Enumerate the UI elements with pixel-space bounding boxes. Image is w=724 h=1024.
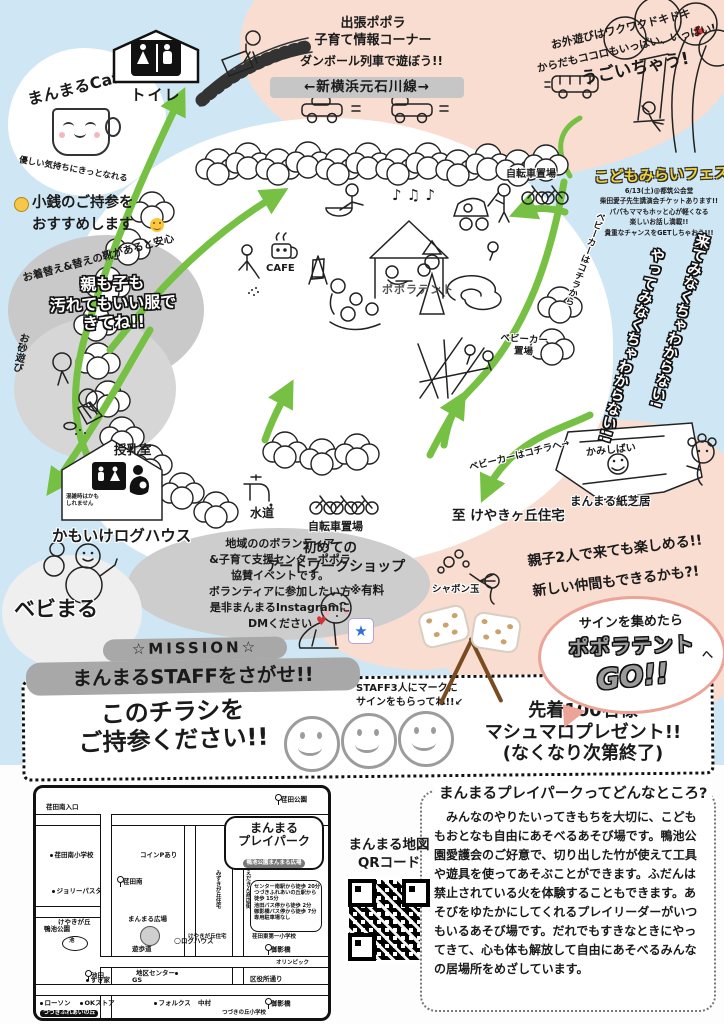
street-map-label: 区役所通り <box>250 976 283 984</box>
pond-shape <box>62 936 88 951</box>
street-map: 荏田南入口 荏田公園 みずきが丘住宅 えだきん商店街 荏田南小学校 荏田南 コイ… <box>33 785 331 1021</box>
map-bubble-sub: 鴨池公園まんまる広場 <box>243 859 304 868</box>
toilet-label: トイレ <box>110 86 202 106</box>
map-water-label: 水道 <box>250 506 274 522</box>
street-map-bus-stop: 荏田南 <box>116 876 143 887</box>
street-map-label: すき家 <box>86 977 110 985</box>
map-bike-top-label: 自転車置場 <box>506 168 556 181</box>
kamishibai-label: まんまる紙芝居 <box>570 494 651 509</box>
street-map-label: 荏田南小学校 <box>50 852 94 860</box>
street-map-bus-stop: 御影橋 <box>264 944 291 955</box>
street-map-title-bubble: まんまる プレイパーク 鴨池公園まんまる広場 <box>224 816 324 870</box>
fes-line-4: 楽しいお話し満載!! <box>594 217 724 228</box>
map-bubble-line2: プレイパーク <box>226 835 322 848</box>
street-map-access-box: センター南駅から徒歩 20分 つづきふれあいの丘駅から 徒歩 15分 池田バス停… <box>250 880 322 932</box>
star-sticker-icon: ★ <box>348 618 374 644</box>
toilet-icon <box>131 40 181 76</box>
coins-note: 小銭のご持参を おすすめします <box>32 192 134 237</box>
poi-dot <box>52 890 55 893</box>
access-line: 専用駐車場なし <box>254 915 318 921</box>
map-music-notes: ♪ ♫ ♪ <box>392 186 435 206</box>
fes-title: こどもみらいフェス <box>594 164 724 188</box>
coin-icon <box>14 197 29 212</box>
mission-title-band: ☆MISSION☆ <box>103 636 287 661</box>
bus-stop-icon <box>264 998 271 1009</box>
bus-stop-icon <box>264 944 271 955</box>
street-map-bus-stop: 御影橋 <box>264 998 291 1009</box>
qr-label: まんまる地図 QRコード <box>332 836 446 872</box>
volunteer-heart-icon: ♥ <box>316 614 327 630</box>
poi-dot <box>50 854 53 857</box>
map-to-keyaki-label: 至 けやきヶ丘住宅 <box>452 508 565 526</box>
access-line: つづきふれあいの丘駅から 徒歩 15分 <box>254 890 318 902</box>
about-body: みんなのやりたいってきもちを大切に、こどももおとなも自由にあそべるあそび場です。… <box>434 808 704 979</box>
street-map-bus-stop: 荏田公園 <box>274 794 307 805</box>
street-map-label: 中村 <box>198 1000 211 1008</box>
street-map-label: 鴨池公園 <box>44 926 70 934</box>
flyer-page: まんまるCafe 優しい気持ちにきっとなれる トイレ 出張ポポラ 子育て情報コー… <box>0 0 724 1024</box>
smiley-face-1 <box>284 716 340 772</box>
street-map-label: 遊歩道 <box>132 946 152 954</box>
marshmallow-icon <box>420 608 540 713</box>
map-stroller-park-label: ベビーカー 置場 <box>499 333 548 360</box>
road <box>36 906 100 918</box>
art-workshop-line2: アートワークショップ <box>266 558 405 576</box>
smiley-face-3 <box>398 711 454 767</box>
street-map-label: GS <box>132 977 142 985</box>
street-map-label: 地区センター <box>136 970 180 978</box>
fes-line-2: 柴田愛子先生講演会チケットあります!! <box>594 196 724 207</box>
street-map-label: 荏田東第一小学校 <box>252 934 296 941</box>
coffee-cup-icon <box>52 108 110 156</box>
manmaru-hiroba-marker <box>140 926 160 946</box>
bubbles-label: シャボン玉 <box>432 584 480 596</box>
street-map-label: OKストア <box>80 1000 115 1008</box>
street-map-label: オリンピック <box>276 960 309 967</box>
toilet-sign: トイレ <box>110 26 202 118</box>
street-map-label: ローソン <box>40 1000 71 1008</box>
street-map-label: ジョリーパスタ <box>52 888 102 896</box>
poi-dot <box>80 1002 83 1005</box>
mission-title: ☆MISSION☆ <box>103 637 287 660</box>
cafe-badge-caption: 優しい気持ちにきっとなれる <box>18 155 166 192</box>
art-workshop-fee: ※有料 <box>350 583 384 598</box>
road-band: ←新横浜元石川線→ <box>270 77 464 98</box>
poi-dot <box>175 972 178 975</box>
clothes-main-note: 親も子も 汚れてもいい服で きてね!! <box>23 271 203 336</box>
map-nursing-label: 授乳室 <box>114 442 152 458</box>
fes-line-3: パパもママもホッと心が軽くなる <box>594 207 724 218</box>
street-map-label: コインPあり <box>140 852 177 860</box>
street-map-label: つづきの丘小学校 <box>222 1010 266 1017</box>
map-tent-label: ポポラテント <box>382 283 454 297</box>
popola-corner-note: 出張ポポラ 子育て情報コーナー <box>278 16 468 50</box>
mission-subtitle: まんまるSTAFFをさがせ!! <box>26 661 360 692</box>
street-map-label: ○ログハウス <box>174 936 213 946</box>
map-bike-bottom-label: 自転車置場 <box>308 520 363 534</box>
smiley-face-2 <box>341 713 397 769</box>
street-map-label: つづきふれあいの丘 <box>40 1010 98 1017</box>
fes-box: こどもみらいフェス 6/13(土)@都筑公会堂 柴田愛子先生講演会チケットありま… <box>594 166 724 238</box>
train-note: ダンボール列車で遊ぼう!! <box>300 54 443 70</box>
fes-line-1: 6/13(土)@都筑公会堂 <box>594 186 724 197</box>
poi-dot <box>154 1002 157 1005</box>
road <box>36 984 328 996</box>
map-nursing-note: 混雑時はかも しれません <box>66 494 99 508</box>
road-label: ←新横浜元石川線→ <box>270 79 464 97</box>
map-cafe-label: CAFE <box>266 262 295 275</box>
about-box: まんまるプレイパークってどんなところ? みんなのやりたいってきもちを大切に、こど… <box>420 790 716 1012</box>
flyer-note: このチラシを ご持参ください!! <box>47 694 299 759</box>
street-map-label: フォルクス <box>154 1000 191 1008</box>
about-title: まんまるプレイパークってどんなところ? <box>434 782 712 803</box>
street-map-label: まんまる広場 <box>128 916 167 924</box>
art-workshop-line1: 初めての <box>303 540 357 558</box>
smile-emoji-icon <box>150 218 164 232</box>
poi-dot <box>40 1002 43 1005</box>
bus-stop-icon <box>274 794 281 805</box>
street-map-label: みずきが丘住宅 <box>214 870 221 926</box>
street-map-label: 池 <box>69 938 75 945</box>
poi-dot <box>86 979 89 982</box>
bebimaru-label: ベビまる <box>14 596 98 623</box>
bus-stop-icon <box>116 876 123 887</box>
mission-subtitle-band: まんまるSTAFFをさがせ!! <box>26 657 361 696</box>
street-map-label: 荏田南入口 <box>46 804 79 812</box>
